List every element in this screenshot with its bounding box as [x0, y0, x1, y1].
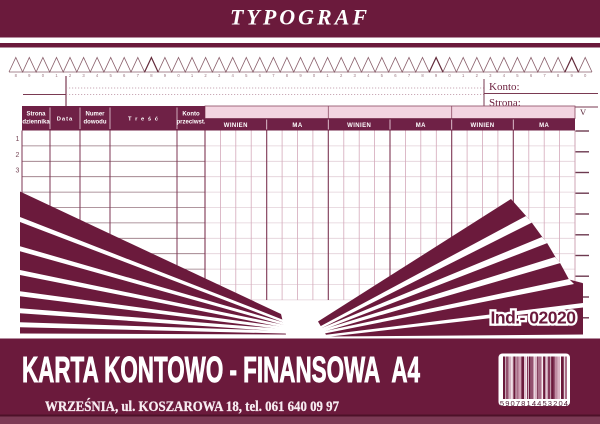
svg-text:3: 3 — [16, 168, 20, 175]
svg-text:2: 2 — [16, 152, 20, 159]
svg-text:dowodu: dowodu — [84, 120, 107, 126]
svg-text:Data: Data — [57, 117, 74, 123]
svg-text:TYPOGRAF: TYPOGRAF — [230, 5, 370, 30]
svg-text:Konto:: Konto: — [489, 81, 520, 93]
svg-text:Numer: Numer — [85, 112, 105, 118]
svg-text:KARTA KONTOWO - FINANSOWA A4: KARTA KONTOWO - FINANSOWA A4 — [22, 349, 420, 390]
svg-text:Ind.- 02020: Ind.- 02020 — [491, 308, 577, 328]
svg-text:MA: MA — [539, 123, 549, 129]
svg-text:MA: MA — [416, 123, 426, 129]
svg-text:1: 1 — [16, 136, 20, 143]
svg-text:5907814453204: 5907814453204 — [500, 399, 569, 408]
svg-text:Strona: Strona — [26, 112, 46, 118]
svg-text:WINIEN: WINIEN — [470, 123, 494, 129]
svg-text:przeciwst.: przeciwst. — [176, 120, 205, 126]
svg-text:T r e ś ć: T r e ś ć — [128, 117, 159, 123]
svg-text:WINIEN: WINIEN — [224, 123, 248, 129]
svg-text:dziennika: dziennika — [22, 120, 50, 126]
svg-text:WINIEN: WINIEN — [347, 123, 371, 129]
svg-text:WRZEŚNIA, ul. KOSZAROWA 18, t: WRZEŚNIA, ul. KOSZAROWA 18, tel. 061 640… — [45, 398, 339, 415]
svg-text:V: V — [580, 107, 587, 117]
svg-text:Konto: Konto — [182, 112, 200, 118]
svg-text:MA: MA — [292, 123, 302, 129]
